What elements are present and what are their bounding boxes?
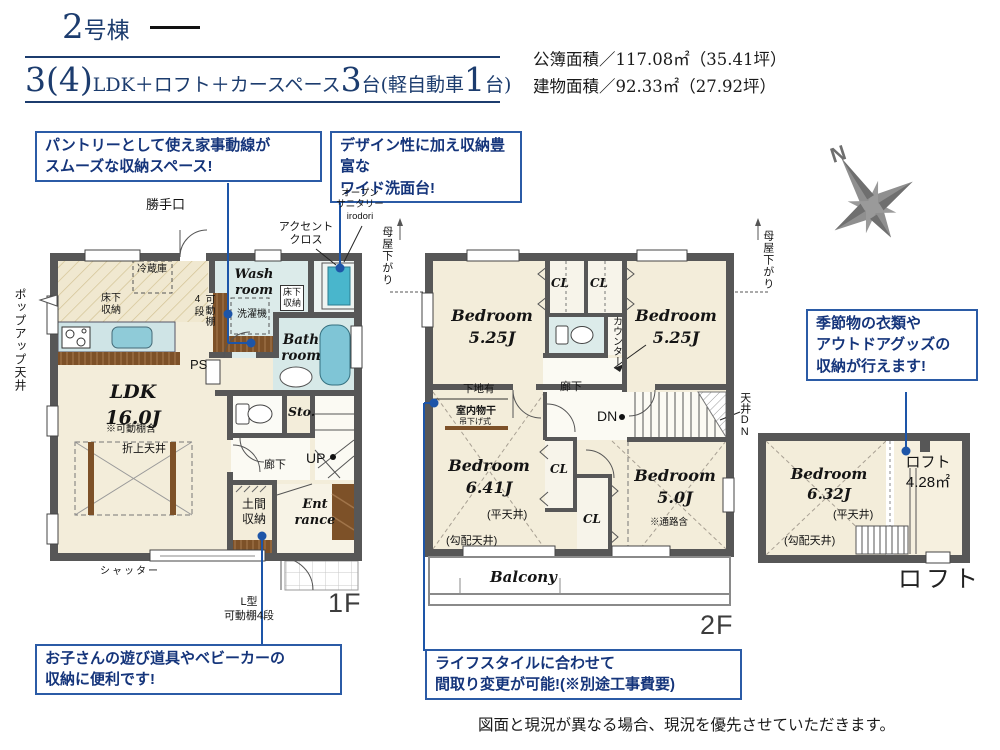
label-counter: カウンター (609, 316, 622, 378)
label-moya-left: 母屋下がり (379, 226, 393, 306)
label-cl-2: CL (590, 276, 608, 291)
compass-rose-icon (804, 132, 932, 261)
label-loft-area: ロフト 4.28㎡ (896, 453, 960, 492)
area-info: 公簿面積／117.08㎡（35.41坪）建物面積／92.33㎡（27.92坪） (533, 46, 786, 100)
label-bedroom-b: Bedroom 5.25J (631, 305, 721, 348)
floor-label-1f: 1F (328, 588, 362, 619)
label-up: UP (306, 450, 325, 468)
floor-plan-page: 2号棟 3(4) LDK＋ロフト＋カースペース 3 台(軽自動車 1 台) 公簿… (0, 0, 1000, 750)
label-backing: 下地有 (463, 383, 495, 396)
callout-pantry: パントリーとして使え家事動線が スムーズな収納スペース! (35, 131, 322, 182)
label-underfloor-wash: 床下 収納 (280, 285, 304, 311)
label-ceiling-dn: 天井DN (737, 392, 751, 452)
floor-label-2f: 2F (700, 610, 734, 641)
label-passage-note: ※通路含 (650, 517, 688, 529)
label-cl-3: CL (550, 462, 568, 477)
label-l-shelf: L型 可動棚4段 (214, 596, 284, 624)
label-shutter: シャッター (100, 566, 160, 579)
plan-desc: LDK＋ロフト＋カースペース (93, 70, 341, 97)
label-bedroom-loft: Bedroom 6.32J (788, 464, 870, 505)
label-sloped-ceiling-2f: (勾配天井) (446, 535, 497, 549)
label-entrance: Ent rance (286, 497, 344, 528)
label-cl-1: CL (551, 276, 569, 291)
label-washer: 洗濯機 (237, 309, 267, 322)
label-washroom: Wash room (228, 267, 280, 298)
label-movable-shelf: 可動棚 4段 (192, 294, 214, 350)
label-coffered-ceiling: 折上天井 (122, 443, 166, 457)
label-open-sanitary: オープン サニタリー irodori (325, 188, 395, 222)
label-doma: 土間 収納 (236, 497, 272, 527)
registered-area: 公簿面積／117.08㎡（35.41坪） (533, 50, 786, 69)
label-popup-ceiling: ポップアップ天井 (12, 288, 27, 438)
building-number: 2 (62, 7, 84, 47)
label-bedroom-d: Bedroom 5.0J (630, 465, 720, 508)
header-rule-top (25, 56, 500, 58)
label-flat-ceiling-loft: (平天井) (833, 509, 873, 523)
label-ps: PS (190, 357, 207, 373)
label-fridge: 冷蔵庫 (137, 264, 167, 277)
label-underfloor-kitchen: 床下 収納 (94, 293, 128, 317)
label-flat-ceiling-2f: (平天井) (487, 509, 527, 523)
label-cl-4: CL (583, 512, 601, 527)
label-hanging-type: 吊下げ式 (459, 417, 491, 427)
callout-kids: お子さんの遊び道具やベビーカーの 収納に便利です! (35, 644, 342, 695)
header-rule-bottom (25, 101, 500, 103)
label-storage-1f: Sto. (288, 404, 315, 420)
label-bedroom-a: Bedroom 5.25J (447, 305, 537, 348)
title-dash (150, 26, 200, 29)
label-hallway-1f: 廊下 (264, 459, 286, 473)
plan-rooms: 3(4) (25, 60, 93, 99)
label-sloped-ceiling-loft: (勾配天井) (784, 535, 835, 549)
label-moya-right: 母屋下がり (760, 230, 774, 310)
disclaimer-text: 図面と現況が異なる場合、現況を優先させていただきます。 (478, 716, 895, 735)
plan-type-line: 3(4) LDK＋ロフト＋カースペース 3 台(軽自動車 1 台) (25, 60, 511, 99)
car-desc: 台(軽自動車 (362, 70, 464, 97)
building-suffix: 号棟 (84, 18, 130, 44)
label-back-door: 勝手口 (146, 197, 185, 213)
label-bathroom: Bath room (280, 332, 322, 364)
label-loft: ロフト (898, 565, 982, 595)
building-title: 2号棟 (62, 6, 130, 49)
label-bedroom-c: Bedroom 6.41J (444, 455, 534, 498)
label-shelf-note: ※可動棚含 (106, 424, 156, 437)
car-count: 3 (341, 60, 362, 99)
kei-count: 1 (464, 60, 485, 99)
building-area: 建物面積／92.33㎡（27.92坪） (533, 77, 776, 96)
callout-lifestyle: ライフスタイルに合わせて 間取り変更が可能!(※別途工事費要) (425, 649, 742, 700)
kei-desc: 台) (485, 70, 511, 97)
label-balcony: Balcony (490, 568, 557, 587)
callout-seasonal: 季節物の衣類や アウトドアグッズの 収納が行えます! (806, 309, 978, 381)
label-dn: DN (597, 408, 617, 426)
label-accent-cloth: アクセント クロス (275, 221, 337, 247)
label-hallway-2f: 廊下 (560, 381, 582, 395)
